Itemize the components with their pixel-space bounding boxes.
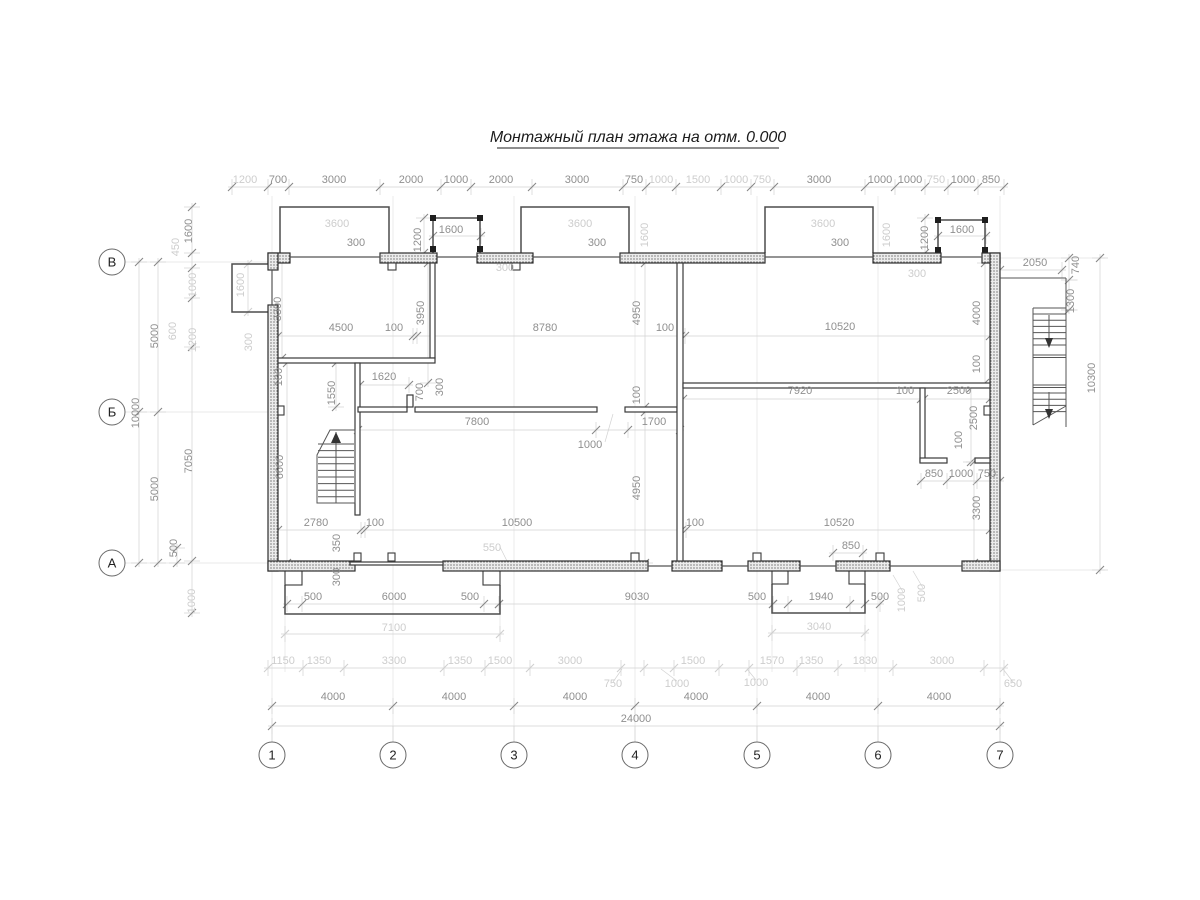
dim-label: 6600 (274, 455, 286, 479)
dim-label: 10520 (825, 321, 856, 333)
dim-label: 3040 (807, 621, 831, 633)
pilaster (631, 553, 639, 561)
wall-segment (620, 253, 765, 263)
dim-label: 1500 (681, 655, 705, 667)
dim-label: 1150 (271, 655, 295, 667)
dim-label: 1550 (326, 381, 338, 405)
dim-label: 500 (748, 591, 766, 603)
dim-label: 500 (871, 591, 889, 603)
porch-post (982, 247, 988, 253)
dim-label: 4950 (631, 476, 643, 500)
interior-wall (683, 383, 990, 388)
dim-label: 300 (908, 268, 926, 280)
dim-label: 100 (656, 322, 674, 334)
dim-label: 1700 (642, 416, 666, 428)
dim-label: 4000 (927, 691, 951, 703)
dim-label: 1600 (183, 219, 195, 243)
interior-wall (975, 458, 990, 463)
dim-label: 1600 (881, 223, 893, 247)
wall-segment (962, 561, 1000, 571)
dim-label: 6000 (382, 591, 406, 603)
dim-label: 750 (604, 678, 622, 690)
drawing-title: Монтажный план этажа на отм. 0.000 (490, 129, 786, 146)
dim-label: 1500 (488, 655, 512, 667)
wall-segment (672, 561, 722, 571)
porch-post (935, 247, 941, 253)
dim-label: 1350 (307, 655, 331, 667)
dim-label: 1600 (639, 223, 651, 247)
dim-label: 1200 (412, 228, 424, 252)
interior-wall (355, 363, 360, 515)
dim-label: 650 (1004, 678, 1022, 690)
dim-label: 750 (978, 468, 996, 480)
wall-segment (873, 253, 941, 263)
dim-label: 3600 (811, 218, 835, 230)
down-arrow (1045, 338, 1053, 348)
dim-label: 1200 (187, 328, 199, 352)
dim-label: 1000 (724, 174, 748, 186)
dim-label: 450 (170, 238, 182, 256)
interior-wall (358, 407, 407, 412)
column-axis-label: 2 (389, 748, 396, 763)
post (354, 553, 361, 561)
dim-label: 4000 (806, 691, 830, 703)
dim-label: 2500 (947, 385, 971, 397)
interior-wall (430, 263, 435, 358)
dim-label: 300 (434, 378, 446, 396)
interior-wall (415, 407, 597, 412)
dim-label: 500 (916, 584, 928, 602)
porch-post (430, 215, 436, 221)
dim-label: 7100 (382, 622, 406, 634)
dim-label: 1350 (448, 655, 472, 667)
dim-label: 100 (366, 517, 384, 529)
dim-label: 3000 (322, 174, 346, 186)
dim-label: 3000 (930, 655, 954, 667)
dim-label: 600 (167, 322, 179, 340)
dim-label: 500 (461, 591, 479, 603)
dim-label: 750 (927, 174, 945, 186)
dim-label: 4000 (563, 691, 587, 703)
dim-label: 1600 (235, 273, 247, 297)
dim-label: 1000 (868, 174, 892, 186)
wall-segment (380, 253, 437, 263)
dim-label: 1600 (950, 224, 974, 236)
threshold (350, 562, 443, 565)
dim-label: 4000 (971, 301, 983, 325)
wall-segment (268, 253, 278, 270)
dim-label: 850 (842, 540, 860, 552)
dim-label: 7920 (788, 385, 812, 397)
column-axis-label: 6 (874, 748, 881, 763)
wall-segment (748, 561, 800, 571)
pilaster (984, 406, 990, 415)
dim-label: 740 (1070, 256, 1082, 274)
dim-label: 1570 (760, 655, 784, 667)
dim-label: 1200 (233, 174, 257, 186)
dim-label: 100 (971, 355, 983, 373)
dim-label: 100 (896, 385, 914, 397)
dim-label: 9030 (625, 591, 649, 603)
wall-segment (990, 253, 1000, 571)
porch-post (477, 246, 483, 252)
dim-label: 4000 (321, 691, 345, 703)
dim-label: 1600 (439, 224, 463, 236)
dim-label: 3950 (415, 301, 427, 325)
dim-label: 750 (625, 174, 643, 186)
column-axis-label: 1 (268, 748, 275, 763)
dim-label: 1000 (186, 589, 198, 613)
interior-wall (625, 407, 677, 412)
dim-label: 700 (414, 383, 426, 401)
porches (232, 207, 988, 614)
pilaster (278, 406, 284, 415)
column-axis-label: 5 (753, 748, 760, 763)
dim-label: 300 (496, 262, 514, 274)
dim-label: 1000 (951, 174, 975, 186)
dim-label: 2000 (399, 174, 423, 186)
dim-label: 1000 (949, 468, 973, 480)
dim-label: 1500 (686, 174, 710, 186)
dim-label: 3000 (807, 174, 831, 186)
dim-label: 10000 (130, 398, 142, 429)
dim-label: 4950 (631, 301, 643, 325)
dim-label: 3300 (272, 297, 284, 321)
dim-label: 5000 (149, 324, 161, 348)
dim-label: 300 (588, 237, 606, 249)
dim-label: 7050 (183, 449, 195, 473)
dim-label: 10520 (824, 517, 855, 529)
interior-staircase (317, 430, 355, 503)
dim-label: 300 (243, 333, 255, 351)
dim-label: 1000 (896, 588, 908, 612)
leader-line (605, 414, 613, 442)
dim-label: 3600 (325, 218, 349, 230)
dim-label: 2000 (489, 174, 513, 186)
dim-label: 3000 (558, 655, 582, 667)
floor-plan-svg: Монтажный план этажа на отм. 0.000 (0, 0, 1200, 900)
porch-outline (521, 207, 629, 253)
dim-label: 4000 (684, 691, 708, 703)
porch-post (477, 215, 483, 221)
dim-label: 100 (686, 517, 704, 529)
dim-label: 3000 (565, 174, 589, 186)
row-axis-label: А (108, 556, 117, 571)
wall-segment (268, 305, 278, 571)
dim-label: 100 (385, 322, 403, 334)
dim-label: 700 (269, 174, 287, 186)
dim-label: 2780 (304, 517, 328, 529)
dim-label: 3300 (382, 655, 406, 667)
column-axis-label: 4 (631, 748, 638, 763)
dim-label: 3600 (568, 218, 592, 230)
interior-wall (278, 358, 435, 363)
dim-label: 7800 (465, 416, 489, 428)
dim-label: 24000 (621, 713, 652, 725)
dim-label: 1940 (809, 591, 833, 603)
dim-label: 1200 (919, 226, 931, 250)
post (388, 553, 395, 561)
up-arrow (331, 432, 341, 443)
interior-wall (677, 263, 683, 561)
porch-post (430, 246, 436, 252)
dim-label: 1000 (744, 677, 768, 689)
row-axis-label: Б (108, 405, 117, 420)
dim-label: 10300 (1086, 363, 1098, 394)
dim-label: 3300 (971, 496, 983, 520)
dim-label: 850 (925, 468, 943, 480)
wall-segment (443, 561, 648, 571)
pilaster (753, 553, 761, 561)
interior-wall (920, 458, 947, 463)
dim-label: 8780 (533, 322, 557, 334)
dim-label: 350 (331, 534, 343, 552)
pilaster (388, 263, 396, 270)
dim-label: 1000 (187, 273, 199, 297)
porch-outline (280, 207, 389, 253)
dim-label: 1300 (1065, 289, 1077, 313)
exterior-staircase (1000, 278, 1066, 427)
dim-label: 2050 (1023, 257, 1047, 269)
dim-label: 1000 (444, 174, 468, 186)
dim-label: 1000 (665, 678, 689, 690)
dim-label: 100 (273, 368, 285, 386)
dim-label: 100 (631, 386, 643, 404)
drawing-canvas: Монтажный план этажа на отм. 0.000 (0, 0, 1200, 900)
wall-segment (836, 561, 890, 571)
dim-label: 750 (753, 174, 771, 186)
porch-post (982, 217, 988, 223)
dim-label: 550 (483, 542, 501, 554)
dim-label: 1000 (649, 174, 673, 186)
dim-label: 1350 (799, 655, 823, 667)
dim-label: 5000 (149, 477, 161, 501)
dim-label: 1000 (898, 174, 922, 186)
dim-label: 300 (331, 568, 343, 586)
dim-label: 850 (982, 174, 1000, 186)
column-axis-label: 3 (510, 748, 517, 763)
dim-label: 10500 (502, 517, 533, 529)
pilaster (876, 553, 884, 561)
dim-label: 300 (347, 237, 365, 249)
dim-label: 1000 (578, 439, 602, 451)
column-axis-label: 7 (996, 748, 1003, 763)
dim-label: 500 (168, 539, 180, 557)
dim-label: 500 (304, 591, 322, 603)
dim-label: 2500 (968, 406, 980, 430)
dim-label: 4500 (329, 322, 353, 334)
dim-label: 300 (831, 237, 849, 249)
porch-outline (765, 207, 873, 253)
dim-label: 4000 (442, 691, 466, 703)
dim-label: 100 (953, 431, 965, 449)
row-axis-label: В (108, 255, 117, 270)
interior-wall-stub (407, 395, 413, 407)
dim-label: 1620 (372, 371, 396, 383)
porch-post (935, 217, 941, 223)
interior-wall (920, 388, 925, 462)
dim-label: 1830 (853, 655, 877, 667)
